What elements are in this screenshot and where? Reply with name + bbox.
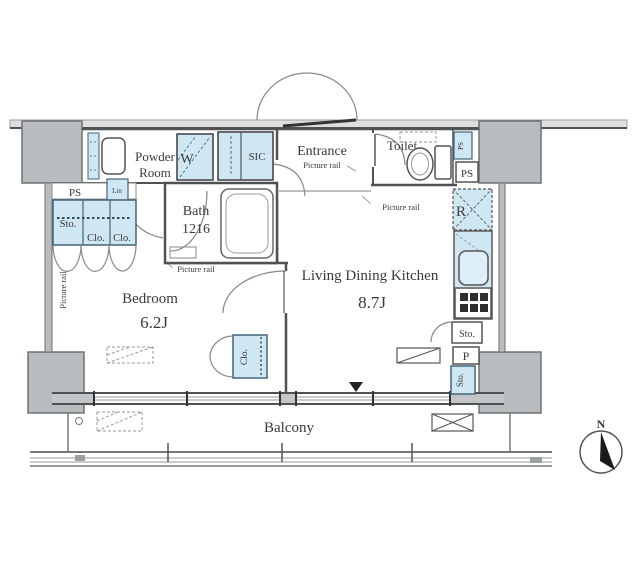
pantry: P [453, 347, 479, 364]
floor-plan: Balcony Entrance Picture rail Powder Roo… [0, 0, 640, 569]
kitchen-storage-lower-label: Sto. [455, 373, 465, 387]
ac-outdoor-unit [97, 412, 142, 431]
closet-door-swings [53, 245, 136, 271]
washer-label: W [180, 152, 194, 167]
bedroom-ac-position [107, 347, 153, 363]
ps-label-left: PS [69, 187, 81, 199]
bathroom: Bath 1216 Picture rail [165, 183, 277, 274]
balcony-label: Balcony [264, 420, 314, 436]
pantry-label: P [463, 349, 470, 363]
bedroom-size-label: 6.2J [140, 313, 168, 332]
kitchen-storage-label: Sto. [459, 329, 475, 340]
shoe-closet: SIC [218, 132, 273, 180]
bath-counter [170, 247, 196, 258]
stove [455, 288, 491, 318]
sic-label: SIC [248, 151, 265, 163]
floor-plan-drawing: Balcony Entrance Picture rail Powder Roo… [0, 0, 640, 569]
closet-row: Sto. Clo. Clo. [53, 200, 136, 271]
drain-circle [76, 418, 83, 425]
picture-rail-leader3 [362, 196, 371, 204]
ps-label-right: PS [461, 168, 473, 180]
kitchen-sink [459, 251, 488, 285]
railing-detail-left [75, 455, 85, 461]
linen-label: Lin [112, 187, 122, 195]
ldk-label: Living Dining Kitchen [302, 268, 439, 284]
kitchen-storage: Sto. [431, 322, 482, 343]
entry-direction-marker [349, 382, 363, 392]
entrance-label: Entrance [297, 144, 347, 159]
entrance-picture-rail-label: Picture rail [303, 160, 341, 170]
toilet-room: Toilet PS PS [375, 132, 478, 182]
column-top-right [479, 121, 541, 183]
bathtub-outer [221, 189, 273, 258]
balcony-equipment-box [432, 414, 473, 431]
storage-label: Sto. [60, 219, 77, 230]
ldk-size-label: 8.7J [358, 293, 386, 312]
picture-rail-leader2 [168, 264, 173, 268]
ldk-door-swing [223, 271, 286, 313]
north-label: N [597, 417, 606, 431]
tv-board [397, 348, 440, 363]
powder-room-label-1: Powder [135, 149, 175, 164]
closet-door-swing-bottom [210, 357, 233, 377]
wall-solid-right [450, 394, 504, 403]
column-top-left [22, 121, 82, 183]
bath-label: Bath [183, 204, 209, 219]
window-wall [52, 382, 504, 406]
fridge-label: R [456, 204, 466, 220]
toilet-ps-label: PS [457, 142, 465, 150]
closet-label-1: Clo. [87, 233, 105, 244]
ldk-picture-rail-label: Picture rail [382, 202, 420, 212]
closet-door-swing-top [210, 336, 233, 357]
bedroom-closet: Clo. [210, 335, 267, 378]
bath-picture-rail-label: Picture rail [177, 264, 215, 274]
bedroom-closet-label: Clo. [240, 349, 250, 365]
bedroom: Bedroom 6.2J Clo. Picture rail [58, 271, 267, 378]
kitchen-storage-door-swing [431, 322, 452, 342]
left-picture-rail-label: Picture rail [58, 271, 68, 309]
vanity-cabinet [88, 133, 99, 179]
toilet-tank [435, 146, 451, 179]
washbasin [102, 138, 125, 174]
bedroom-label: Bedroom [122, 291, 178, 307]
wall-solid-mid [280, 394, 296, 403]
entrance-door-swing [257, 73, 357, 120]
washer-space: W [177, 134, 213, 180]
railing-detail-right [530, 457, 542, 463]
balcony: Balcony [30, 412, 552, 466]
picture-rail-leader1 [347, 166, 356, 171]
wall-solid-left [52, 394, 94, 403]
right-wall [499, 183, 505, 352]
powder-room-label-2: Room [139, 165, 171, 180]
compass: N [580, 417, 622, 473]
fridge-space: R [453, 189, 492, 230]
kitchen-storage-lower: Sto. [451, 366, 475, 394]
bath-size-label: 1216 [182, 222, 210, 237]
left-wall [45, 183, 52, 352]
closet-label-2: Clo. [113, 233, 131, 244]
